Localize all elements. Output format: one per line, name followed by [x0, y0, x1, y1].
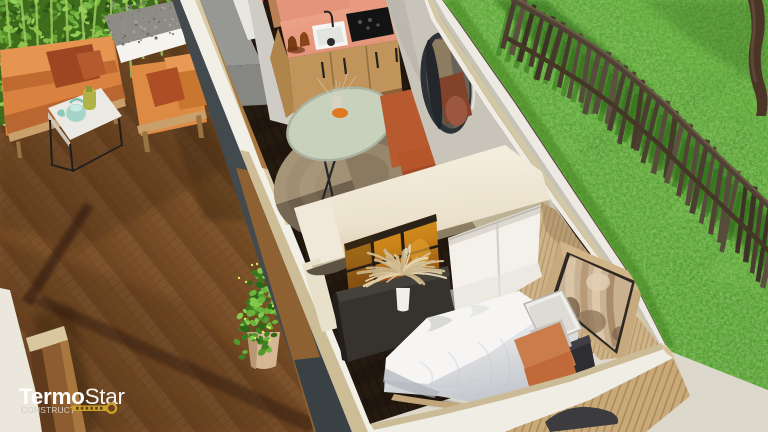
svg-text:CONSTRUCT: CONSTRUCT — [21, 405, 75, 415]
